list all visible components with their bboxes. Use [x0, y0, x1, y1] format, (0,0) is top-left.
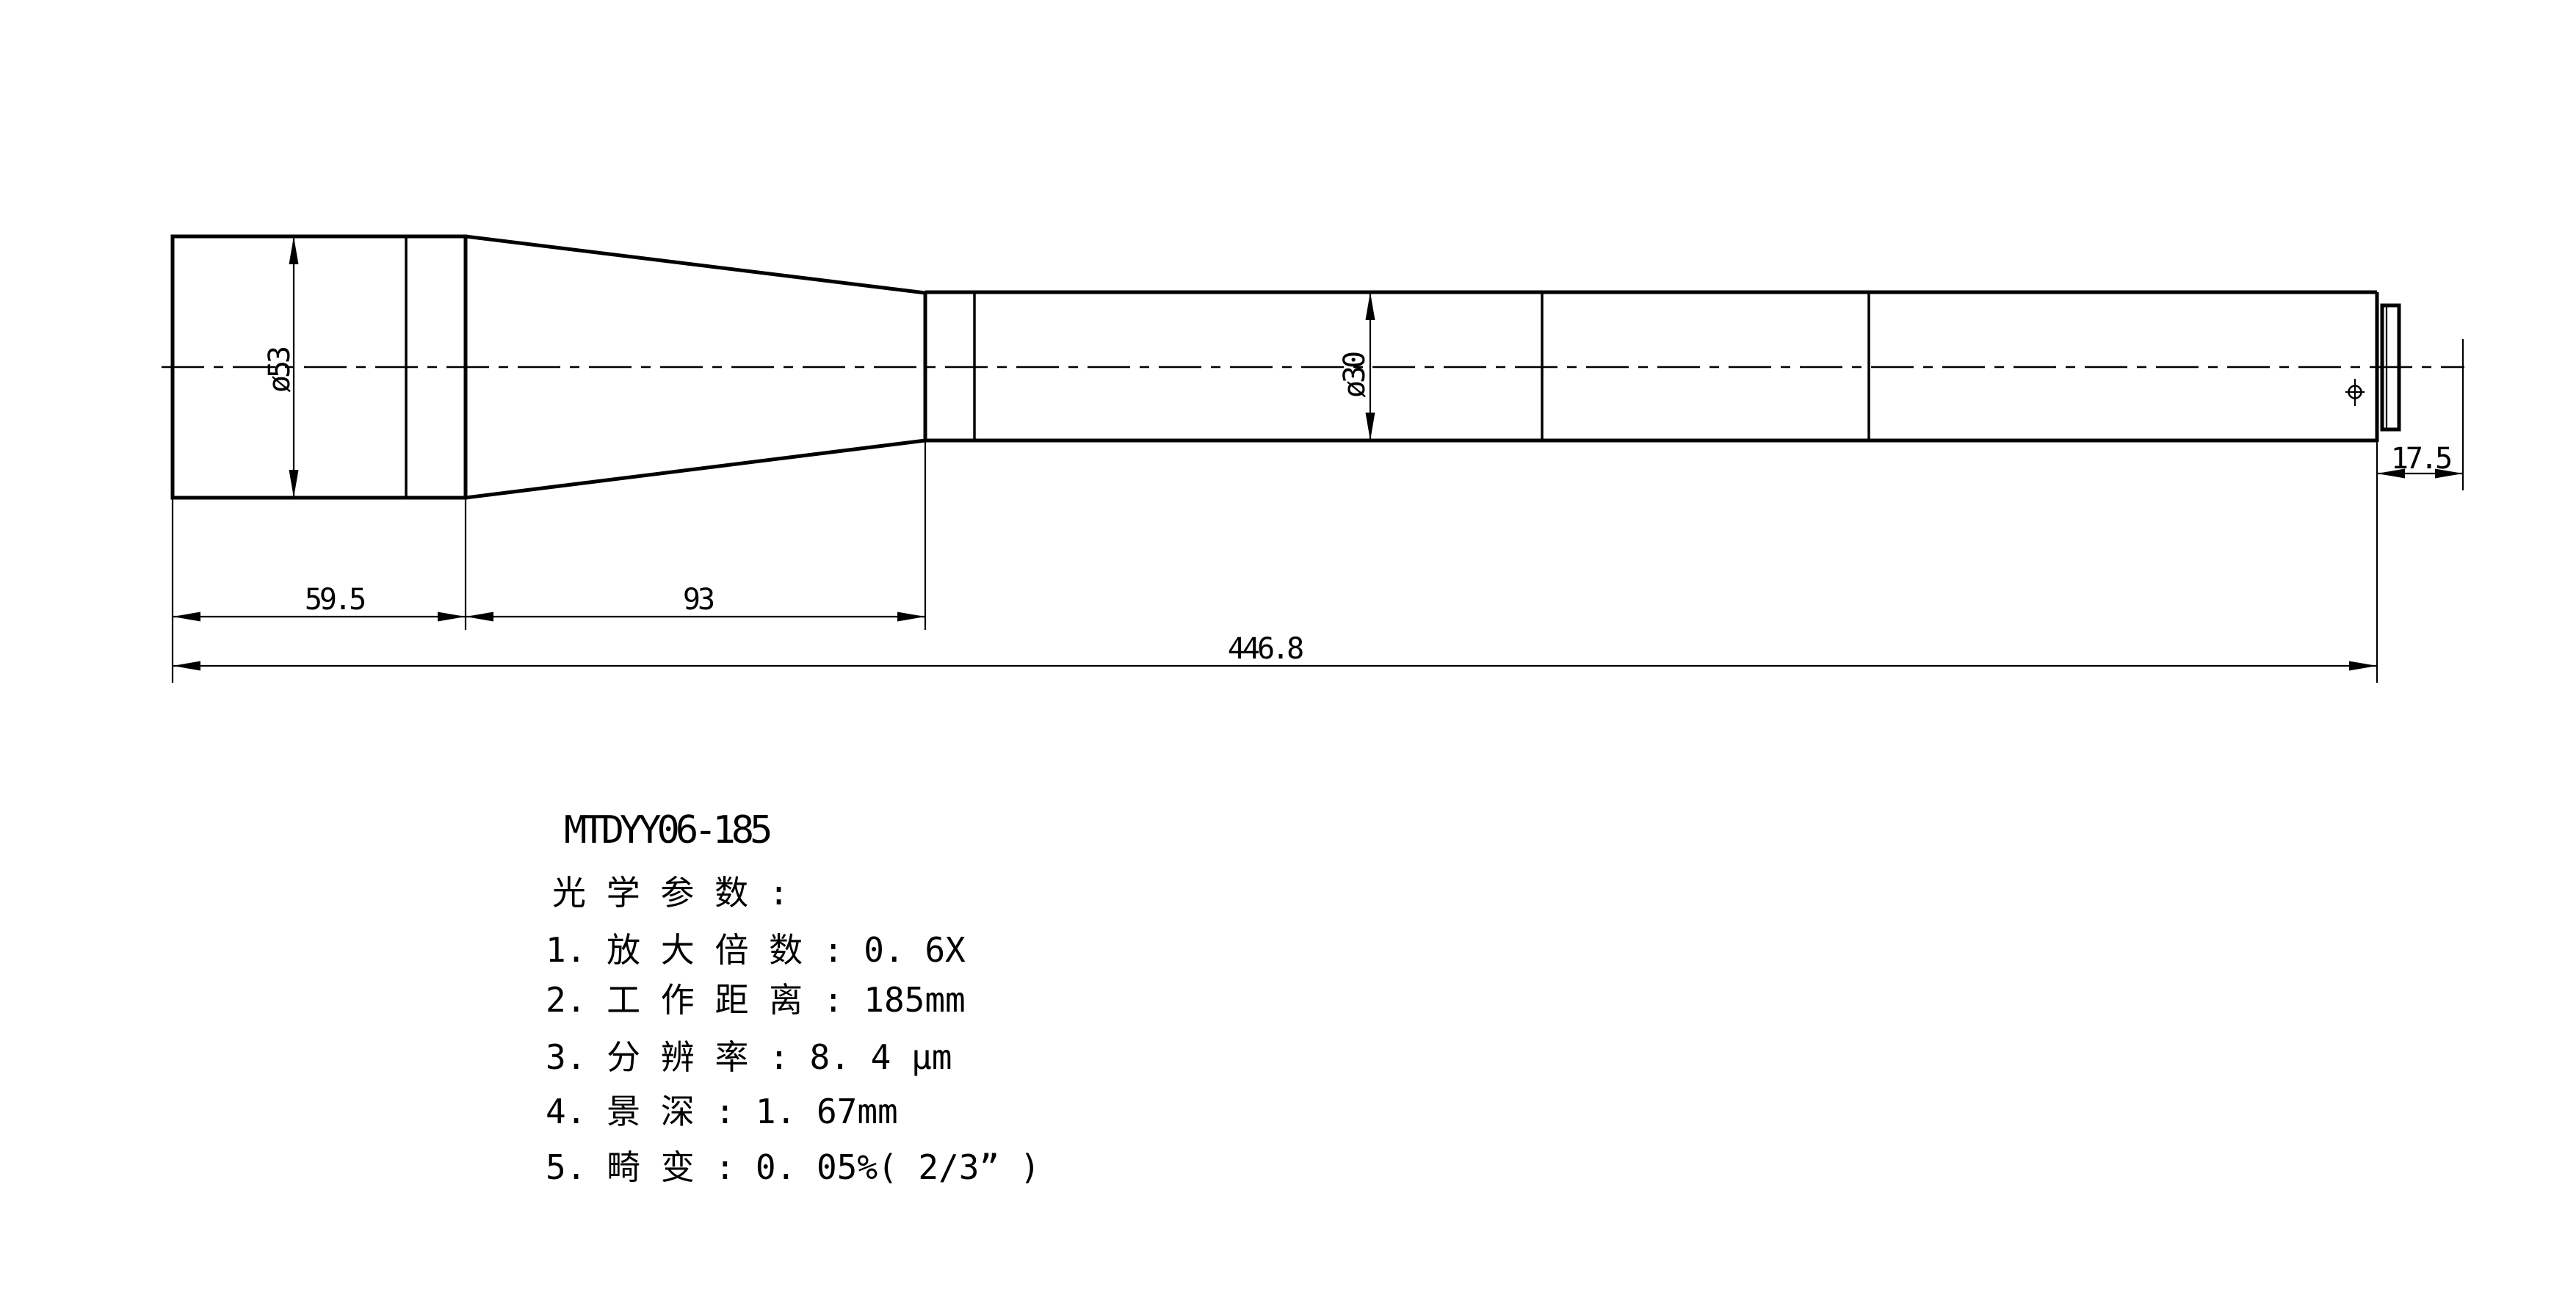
spec-text-block: MTDYY06-185 光 学 参 数 : 1. 放 大 倍 数 : 0. 6X…	[546, 808, 1041, 1187]
position-target-icon	[2345, 379, 2365, 406]
dim-front-length: 59.5	[173, 583, 466, 622]
technical-drawing-sheet: 59.5 93 446.8 17.5 ø53	[0, 0, 2576, 1306]
dim-label-flange-distance: 17.5	[2391, 442, 2450, 476]
taper-bottom-edge	[466, 440, 925, 498]
dim-flange-distance: 17.5	[2377, 442, 2463, 479]
dim-tube-diameter: ø30	[1338, 292, 1375, 440]
spec-item-depth-of-field: 4. 景 深 : 1. 67mm	[546, 1092, 898, 1131]
dim-label-front-diameter: ø53	[263, 347, 297, 393]
model-number-text: MTDYY06-185	[564, 808, 770, 852]
dim-label-front-length: 59.5	[305, 583, 364, 617]
dim-label-total-length: 446.8	[1228, 632, 1303, 666]
spec-header-text: 光 学 参 数 :	[552, 873, 789, 913]
spec-item-magnification: 1. 放 大 倍 数 : 0. 6X	[546, 930, 966, 970]
taper-top-edge	[466, 236, 925, 293]
spec-item-working-distance: 2. 工 作 距 离 : 185mm	[546, 980, 966, 1020]
spec-item-distortion: 5. 畸 变 : 0. 05%( 2/3” )	[546, 1147, 1041, 1187]
lens-drawing-svg: 59.5 93 446.8 17.5 ø53	[0, 0, 2576, 1306]
dim-total-length: 446.8	[173, 632, 2377, 671]
spec-item-resolution: 3. 分 辨 率 : 8. 4 μm	[546, 1037, 952, 1077]
dim-taper-length: 93	[466, 583, 925, 622]
dim-label-tube-diameter: ø30	[1338, 352, 1372, 398]
dim-label-taper-length: 93	[683, 583, 714, 617]
dim-front-diameter: ø53	[263, 236, 299, 498]
